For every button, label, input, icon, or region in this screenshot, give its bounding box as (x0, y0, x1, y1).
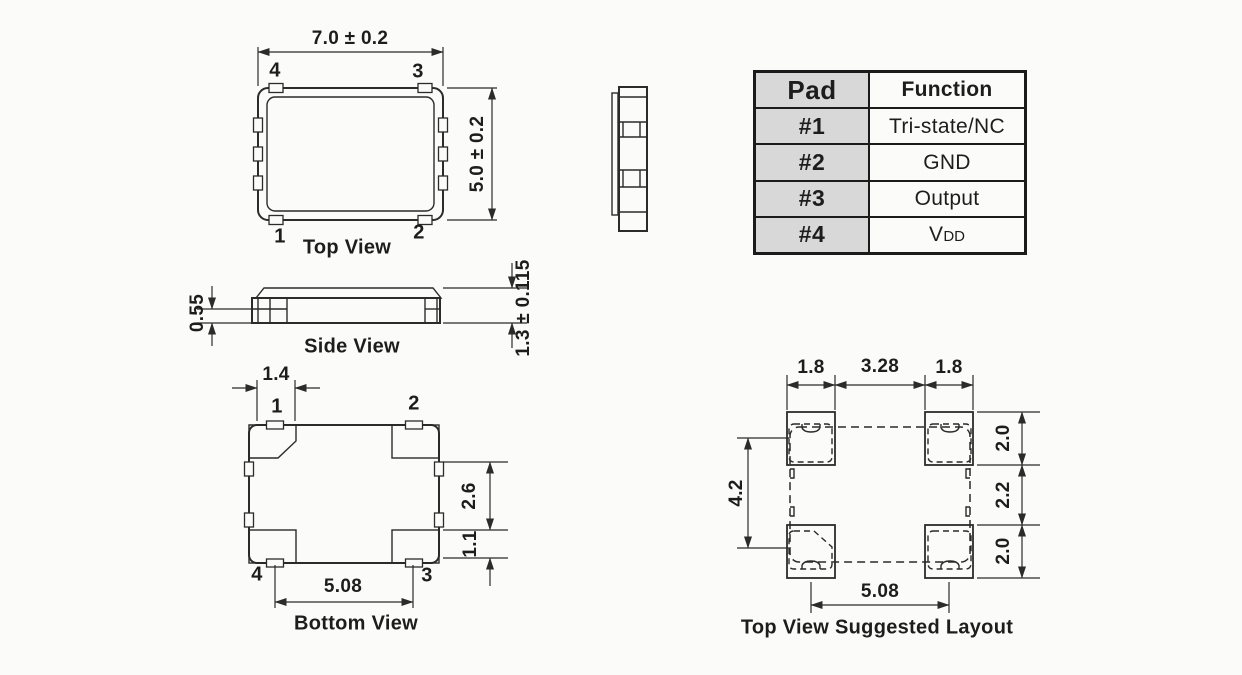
top-view-pad-number-2: 2 (413, 222, 424, 245)
pad-table-row-3-function: Output (870, 182, 1024, 216)
layout-pad-pitch-dimension: 5.08 (861, 581, 899, 603)
layout-center-gap-dimension: 3.28 (861, 356, 899, 378)
pad-table-row-1: #1 Tri-state/NC (756, 107, 1024, 143)
side-view-body-height-dimension: 1.3 ± 0.115 (513, 259, 535, 356)
layout-right-pad-width-dimension: 1.8 (935, 357, 962, 379)
layout-left-pad-width-dimension: 1.8 (797, 357, 824, 379)
top-view-width-dimension: 7.0 ± 0.2 (312, 28, 389, 50)
layout-bottom-pad-height-dimension: 2.0 (993, 537, 1015, 564)
pad-table-row-3-pad: #3 (756, 182, 870, 216)
top-view-height-dimension: 5.0 ± 0.2 (467, 116, 489, 193)
function-text: V (929, 224, 943, 245)
function-text: Tri-state/NC (889, 116, 1005, 137)
bottom-view-pad-width-dimension: 1.4 (262, 364, 289, 386)
layout-top-pad-height-dimension: 2.0 (993, 424, 1015, 451)
pad-function-table: Pad Function #1 Tri-state/NC #2 GND #3 O… (753, 70, 1027, 255)
pad-table-row-1-function: Tri-state/NC (870, 109, 1024, 143)
bottom-view-title: Bottom View (294, 613, 418, 636)
layout-vertical-span-dimension: 4.2 (726, 479, 748, 506)
pad-table-row-3: #3 Output (756, 180, 1024, 216)
layout-middle-gap-dimension: 2.2 (993, 481, 1015, 508)
pad-table-row-2: #2 GND (756, 143, 1024, 179)
function-text: GND (923, 152, 971, 173)
pad-table-row-2-pad: #2 (756, 145, 870, 179)
side-view-drawing (185, 250, 545, 380)
pad-table-row-4: #4 V DD (756, 216, 1024, 252)
mechanical-drawing-sheet: 7.0 ± 0.2 4 3 1 2 Top View 5.0 ± 0.2 0.5… (0, 0, 1242, 675)
top-view-pad-number-3: 3 (412, 61, 423, 84)
bottom-view-pad-number-1: 1 (271, 396, 282, 419)
pad-table-row-4-pad: #4 (756, 218, 870, 252)
function-text: Output (915, 188, 980, 209)
pad-table-row-2-function: GND (870, 145, 1024, 179)
function-subscript: DD (943, 229, 965, 244)
top-view-pad-number-1: 1 (274, 226, 285, 249)
pad-table-header-row: Pad Function (756, 73, 1024, 107)
top-view-pad-number-4: 4 (269, 60, 280, 83)
pad-table-row-1-pad: #1 (756, 109, 870, 143)
end-view-drawing (600, 78, 670, 233)
side-view-pad-height-dimension: 0.55 (187, 294, 209, 332)
bottom-view-pad-number-3: 3 (421, 565, 432, 588)
bottom-view-pad-number-2: 2 (408, 393, 419, 416)
bottom-view-pad-pitch-dimension: 5.08 (324, 576, 362, 598)
top-view-title: Top View (303, 237, 391, 260)
pad-table-header-pad: Pad (756, 73, 870, 107)
bottom-view-edge-gap-dimension: 1.1 (460, 530, 482, 557)
pad-table-row-4-function: V DD (870, 218, 1024, 252)
bottom-view-pad-length-dimension: 2.6 (459, 482, 481, 509)
side-view-title: Side View (304, 336, 400, 359)
pad-table-header-function: Function (870, 73, 1024, 107)
bottom-view-pad-number-4: 4 (251, 564, 262, 587)
suggested-layout-title: Top View Suggested Layout (741, 617, 1013, 640)
